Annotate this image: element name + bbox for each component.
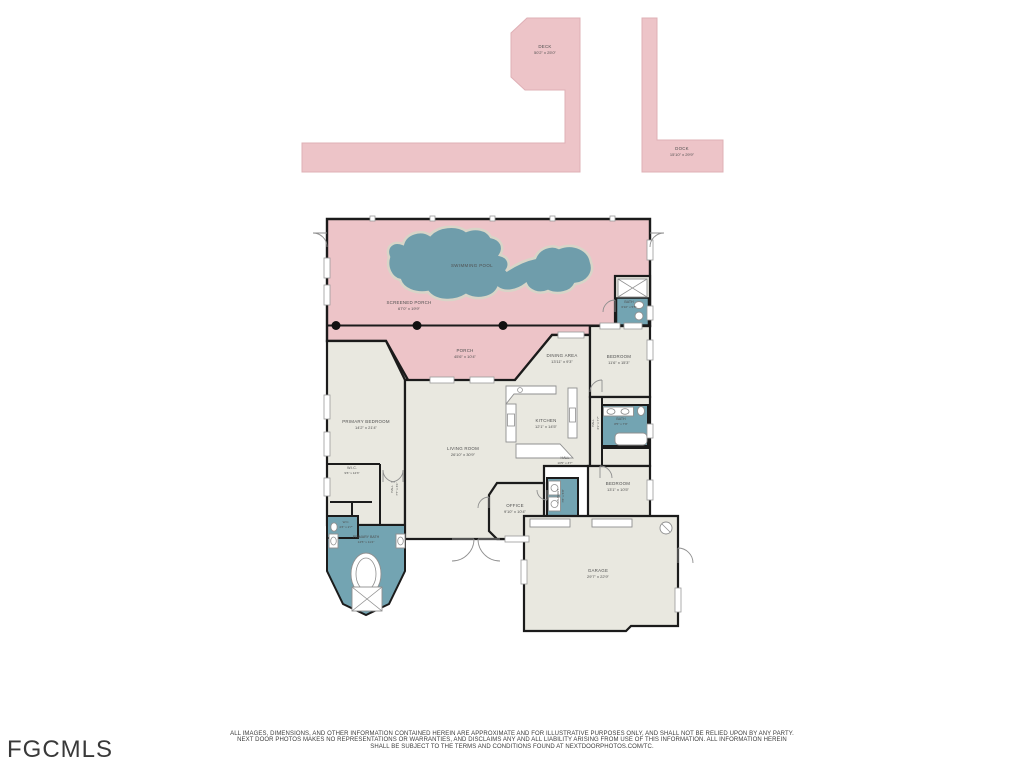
label-laundry-dims: 7'8" x 5'8" (561, 489, 565, 503)
label-deck-name: DECK (538, 44, 551, 49)
label-kitchen-dims: 12'1" x 14'5" (535, 424, 558, 429)
disclaimer-line-3: SHALL BE SUBJECT TO THE TERMS AND CONDIT… (0, 744, 1024, 750)
label-primary-bedroom-dims: 14'2" x 21'4" (355, 425, 378, 430)
label-bedroom-rb-dims: 13'1" x 10'5" (607, 487, 630, 492)
label-wic-dims: 9'6" x 12'3" (344, 471, 359, 475)
label-dock-dims: 15'10" x 29'9" (670, 152, 695, 157)
label-bedroom-rt-dims: 11'6" x 15'3" (608, 360, 630, 365)
label-laundry-name: LAUNDRY (556, 489, 560, 504)
label-hall-primary-name: HALL (390, 485, 394, 493)
room-primary-bedroom (327, 341, 405, 525)
label-office-dims: 9'10" x 10'4" (504, 509, 527, 514)
label-primary-bedroom-name: PRIMARY BEDROOM (342, 419, 390, 424)
label-office-name: OFFICE (506, 503, 524, 508)
label-deck-dims: 50'2" x 25'0" (534, 50, 557, 55)
label-primary-bath-dims: 14'5" x 11'4" (358, 540, 375, 544)
label-primary-bath-name: PRIMARY BATH (353, 535, 380, 539)
label-living-dims: 26'10" x 30'9" (451, 452, 476, 457)
label-bedroom-rb-name: BEDROOM (606, 481, 631, 486)
label-dock-name: DOCK (675, 146, 689, 151)
label-hall-primary-dims: 7'7" x 3'1" (395, 482, 399, 496)
label-porch-name: PORCH (456, 348, 473, 353)
deck-shape (302, 18, 580, 172)
label-wc-dims: 4'3" x 2'7" (339, 525, 353, 529)
label-bedroom-rt-name: BEDROOM (607, 354, 632, 359)
label-hall-horizontal-dims: 10'5" x 3'7" (557, 461, 572, 465)
disclaimer: ALL IMAGES, DIMENSIONS, AND OTHER INFORM… (0, 731, 1024, 750)
label-pool-bath-name: BATH (624, 300, 634, 304)
room-bedroom-right-bottom (588, 466, 650, 522)
label-swimming-pool: SWIMMING POOL (451, 263, 493, 268)
label-porch-dims: 45'6" x 10'4" (454, 354, 477, 359)
label-bath-center-dims: 8'5" x 7'9" (614, 422, 628, 426)
label-living-name: LIVING ROOM (447, 446, 479, 451)
label-kitchen-name: KITCHEN (535, 418, 556, 423)
label-garage-name: GARAGE (588, 568, 608, 573)
label-wc-name: W.C. (343, 520, 350, 524)
label-hall-vertical-dims: 3'1" x 7'7" (596, 416, 600, 430)
label-dining-dims: 13'11" x 9'3" (551, 359, 573, 364)
label-dining-name: DINING AREA (546, 353, 577, 358)
label-hall-vertical-name: HALL (591, 419, 595, 427)
label-pool-bath-dims: 6'10" x 5'5" (621, 305, 636, 309)
label-screened-porch-dims: 67'0" x 19'9" (398, 306, 421, 311)
label-wic-name: W.I.C. (347, 466, 357, 470)
label-garage-dims: 29'7" x 22'9" (587, 574, 610, 579)
label-screened-porch-name: SCREENED PORCH (387, 300, 432, 305)
label-bath-center-name: BATH (616, 417, 626, 421)
floorplan-svg: DECK 50'2" x 25'0" DOCK 15'10" x 29'9" S… (0, 0, 1024, 768)
label-hall-horizontal-name: HALL (561, 456, 570, 460)
